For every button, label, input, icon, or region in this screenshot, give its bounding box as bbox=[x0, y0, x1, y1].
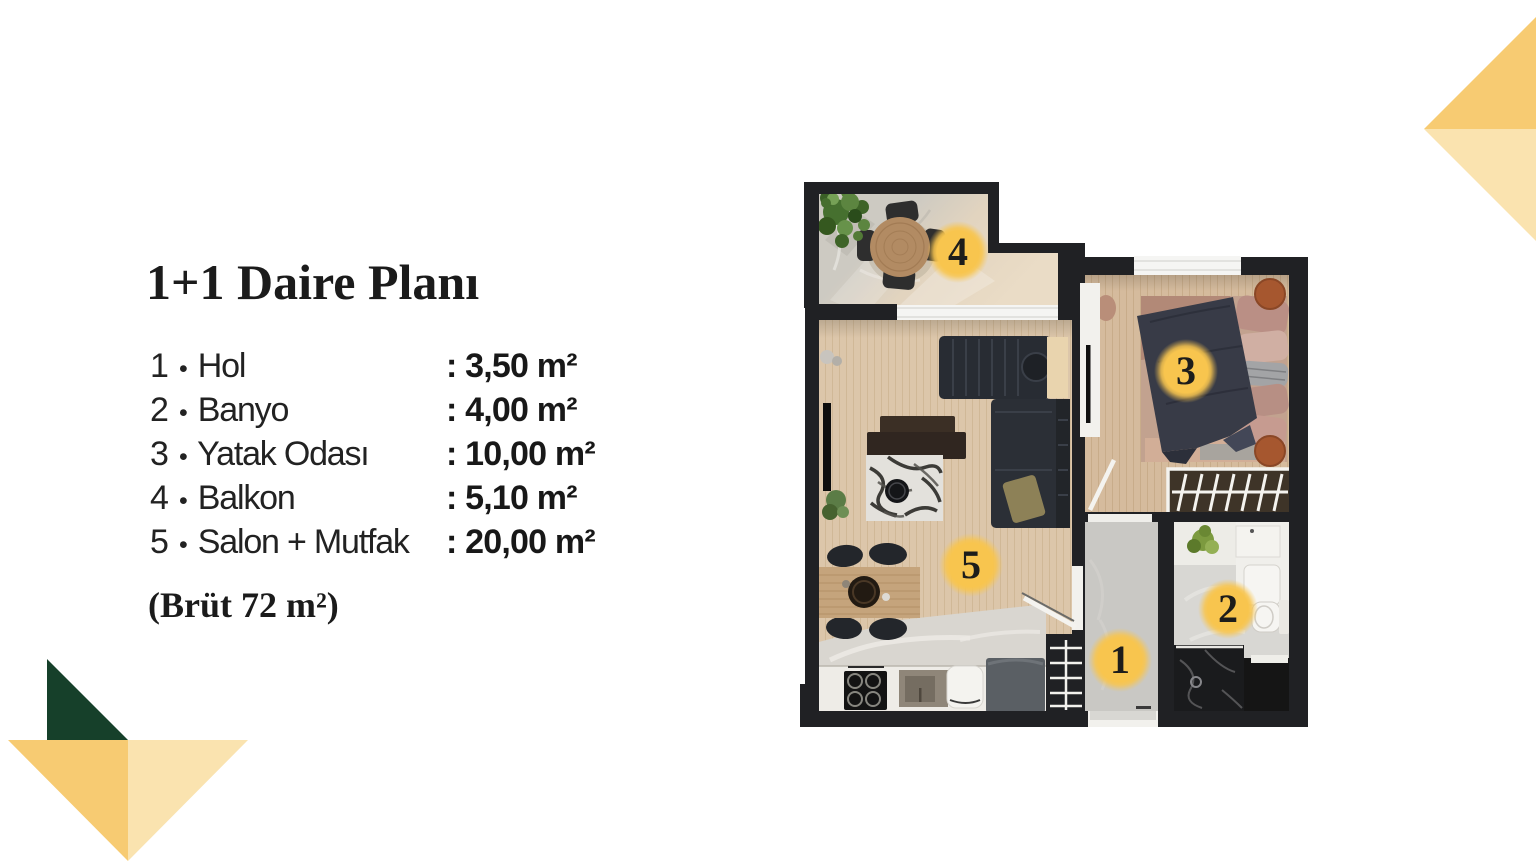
svg-text:2: 2 bbox=[1218, 586, 1238, 631]
svg-text:4: 4 bbox=[948, 229, 968, 274]
svg-text:1: 1 bbox=[1110, 637, 1130, 682]
svg-text:3: 3 bbox=[1176, 348, 1196, 393]
svg-text:5: 5 bbox=[961, 542, 981, 587]
